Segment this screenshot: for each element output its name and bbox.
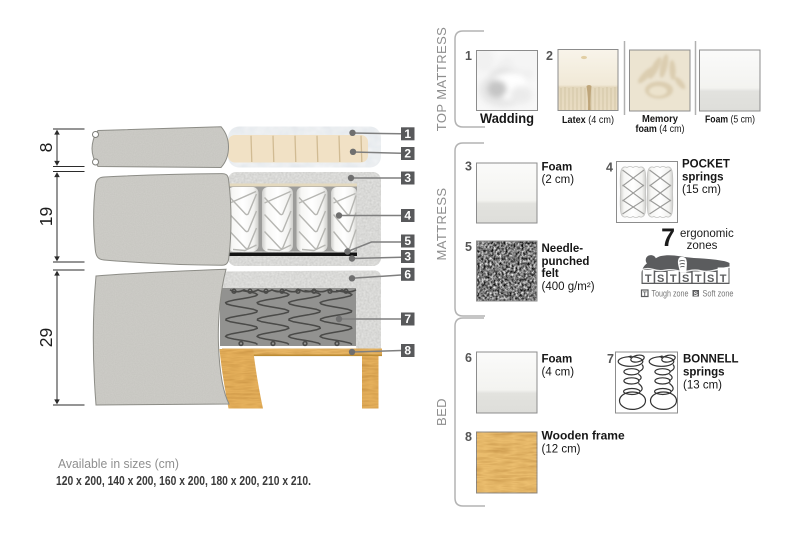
svg-text:19: 19 <box>36 207 56 226</box>
svg-text:springs: springs <box>682 171 724 183</box>
svg-text:1: 1 <box>404 127 411 141</box>
svg-text:4: 4 <box>404 209 411 223</box>
svg-text:7: 7 <box>661 224 675 252</box>
svg-text:Soft zone: Soft zone <box>703 288 734 299</box>
svg-text:Wadding: Wadding <box>480 110 534 126</box>
svg-text:S: S <box>694 291 699 298</box>
svg-text:2: 2 <box>546 49 553 63</box>
svg-text:(4 cm): (4 cm) <box>542 366 575 378</box>
svg-text:S: S <box>707 273 714 285</box>
svg-text:8: 8 <box>465 430 472 444</box>
svg-text:(12 cm): (12 cm) <box>542 443 581 455</box>
svg-text:6: 6 <box>404 268 411 282</box>
svg-text:8: 8 <box>404 344 411 358</box>
svg-text:T: T <box>645 273 652 285</box>
svg-text:POCKET: POCKET <box>682 159 730 171</box>
svg-text:(13 cm): (13 cm) <box>683 379 722 391</box>
svg-text:(400 g/m²): (400 g/m²) <box>542 281 595 293</box>
svg-text:(15 cm): (15 cm) <box>682 184 721 196</box>
svg-text:120 x 200, 140 x 200, 160 x 20: 120 x 200, 140 x 200, 160 x 200, 180 x 2… <box>56 474 311 488</box>
svg-text:T: T <box>695 273 702 285</box>
svg-text:29: 29 <box>36 328 56 347</box>
svg-text:BONNELL: BONNELL <box>683 354 739 366</box>
svg-text:MATTRESS: MATTRESS <box>434 187 449 260</box>
svg-text:zones: zones <box>687 240 718 252</box>
svg-text:springs: springs <box>683 366 725 378</box>
svg-text:4: 4 <box>606 161 613 175</box>
svg-text:punched: punched <box>542 256 590 268</box>
svg-text:foam (4 cm): foam (4 cm) <box>636 123 685 135</box>
svg-text:Needle-: Needle- <box>542 243 584 255</box>
svg-text:felt: felt <box>542 268 559 280</box>
svg-text:ergonomic: ergonomic <box>680 228 734 240</box>
svg-text:Latex (4 cm): Latex (4 cm) <box>562 114 614 126</box>
svg-text:3: 3 <box>465 160 472 174</box>
svg-text:Wooden frame: Wooden frame <box>542 428 625 442</box>
svg-text:Foam: Foam <box>542 353 573 365</box>
svg-text:Foam (5 cm): Foam (5 cm) <box>705 114 755 126</box>
svg-text:1: 1 <box>465 49 472 63</box>
svg-text:7: 7 <box>607 352 614 366</box>
svg-text:T: T <box>643 291 647 298</box>
svg-text:(2 cm): (2 cm) <box>542 174 575 186</box>
svg-text:S: S <box>682 273 689 285</box>
svg-text:5: 5 <box>404 234 411 248</box>
svg-text:BED: BED <box>434 398 449 426</box>
svg-text:3: 3 <box>404 250 411 264</box>
svg-text:Tough zone: Tough zone <box>652 288 689 299</box>
svg-text:5: 5 <box>465 240 472 254</box>
svg-text:TOP MATTRESS: TOP MATTRESS <box>434 27 449 131</box>
svg-text:7: 7 <box>404 312 411 326</box>
svg-text:T: T <box>720 273 727 285</box>
svg-text:3: 3 <box>404 171 411 185</box>
svg-text:T: T <box>670 273 677 285</box>
svg-text:Available in sizes (cm): Available in sizes (cm) <box>58 456 179 471</box>
svg-text:S: S <box>657 273 664 285</box>
svg-text:Foam: Foam <box>542 162 573 174</box>
svg-text:2: 2 <box>404 147 411 161</box>
svg-text:8: 8 <box>36 143 56 153</box>
svg-text:6: 6 <box>465 351 472 365</box>
